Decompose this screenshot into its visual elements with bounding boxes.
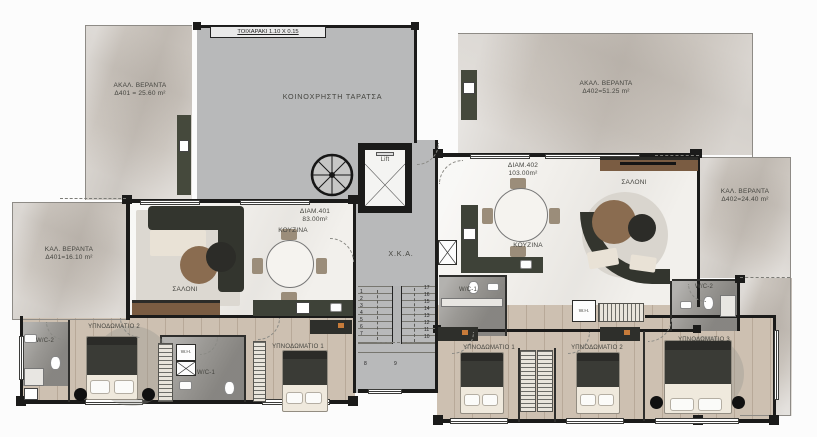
closet [520, 350, 536, 412]
water-heater-label: W.H. [573, 309, 595, 315]
water-heater-label: W.H. [177, 350, 195, 356]
sink [179, 381, 192, 390]
apt-area: 83.00m² [284, 216, 346, 224]
shower [24, 368, 44, 386]
kitchen-sink [330, 303, 342, 312]
label-apt401-bedroom2: ΥΠΝΟΔΩΜΑΤΙΟ 2 [66, 324, 162, 332]
stair-number: 16 [424, 293, 430, 298]
spiral-stair-icon [310, 153, 354, 197]
partition [672, 279, 740, 281]
apt-area: 103.00m² [492, 170, 554, 178]
toilet [50, 356, 61, 370]
shaft-box [438, 240, 457, 265]
headboard [577, 353, 619, 361]
pier [769, 415, 779, 425]
wall-note-label: ΤΟΙΧΑΡΑΚΙ 1.10 Χ 0.15 [210, 26, 326, 38]
coffee-table [206, 242, 236, 272]
blanket [87, 345, 138, 375]
label-apt402-kitchen: ΚΟΥΖΙΝΑ [497, 242, 559, 250]
label-apt402: ΔΙΑΜ.402 103.00m² [492, 162, 554, 179]
dining-table [494, 188, 548, 242]
window [566, 418, 624, 424]
headboard [283, 351, 327, 359]
bathtub [441, 298, 503, 307]
window [470, 154, 530, 159]
label-veranda-right: ΚΑΛ. ΒΕΡΑΝΤΑ Δ402=24.40 m² [695, 188, 795, 205]
floor-veranda-right [698, 157, 790, 278]
veranda-area: Δ402=51.25 m² [550, 88, 662, 96]
headboard [461, 353, 503, 361]
partition [244, 335, 246, 402]
veranda-name: ΑΚΑΛ. ΒΕΡΑΝΤΑ [550, 80, 662, 88]
apt-name: ΔΙΑΜ.401 [284, 208, 346, 216]
partition [554, 348, 556, 422]
apt-name: ΔΙΑΜ.402 [492, 162, 554, 170]
railing [458, 33, 753, 34]
shower [720, 295, 736, 317]
label-apt402-living: ΣΑΛΟΝΙ [603, 179, 665, 187]
label-apt401-bedroom1: ΥΠΝΟΔΩΜΑΤΙΟ 1 [250, 344, 346, 352]
window [450, 418, 508, 424]
pillow [698, 398, 722, 411]
dining-chair [549, 208, 560, 224]
pillow [598, 394, 614, 406]
railing [752, 33, 753, 157]
pillow [464, 394, 480, 406]
wall-wc2-402-right [737, 277, 740, 331]
label-corridor: Χ.Κ.Α. [377, 249, 425, 258]
veranda-area: Δ401 = 25.60 m² [88, 90, 192, 98]
partition [68, 320, 70, 402]
tv-console [132, 300, 220, 315]
lift-label: Lift [365, 157, 405, 165]
railing [698, 157, 790, 158]
label-apt402-bedroom2: ΥΠΝΟΔΩΜΑΤΙΟ 2 [554, 345, 640, 353]
stair-number: 2 [360, 297, 363, 302]
railing [85, 25, 192, 26]
veranda-name: ΑΚΑΛ. ΒΕΡΑΝΤΑ [88, 82, 192, 90]
label-veranda-top-left: ΑΚΑΛ. ΒΕΡΑΝΤΑ Δ401 = 25.60 m² [88, 82, 192, 99]
wall-corridor-right [435, 140, 438, 393]
veranda-name: ΚΑΛ. ΒΕΡΑΝΤΑ [695, 188, 795, 196]
label-apt401-kitchen: ΚΟΥΖΙΝΑ [262, 227, 324, 235]
partition [505, 277, 507, 336]
kitchen-sink [520, 260, 532, 269]
toilet [224, 381, 235, 395]
balcony-divider [177, 115, 191, 195]
stove [296, 302, 310, 314]
pillow [286, 392, 303, 404]
dining-chair [316, 258, 327, 274]
stair-number: 5 [360, 318, 363, 323]
wall-terrace-right [414, 25, 417, 143]
dining-table [266, 240, 314, 288]
stair-number: 12 [424, 321, 430, 326]
pillow [482, 394, 498, 406]
dining-chair [482, 208, 493, 224]
wall-apt401-left [126, 199, 130, 320]
side-table [74, 388, 87, 401]
side-table [142, 388, 155, 401]
pier [348, 396, 358, 406]
closet [158, 343, 173, 402]
veranda-area: Δ402=24.40 m² [695, 196, 795, 204]
dashed-boundary [655, 155, 699, 156]
blanket [461, 361, 504, 387]
floor-veranda-top-left [85, 25, 192, 200]
balcony-unit [179, 140, 189, 152]
pier [193, 22, 201, 30]
desk [310, 320, 352, 334]
window [655, 418, 739, 424]
pillow [114, 380, 134, 394]
pillow [670, 398, 694, 411]
balcony-unit [463, 82, 475, 94]
label-apt402-wc1: W/C-1 [446, 287, 490, 295]
stair-number: 9 [394, 362, 397, 367]
lift-panel [376, 152, 394, 156]
stair-number: 6 [360, 325, 363, 330]
railing [85, 25, 86, 200]
stair-number: 8 [364, 362, 367, 367]
dashed-boundary [740, 277, 790, 278]
desk-lamp [624, 330, 630, 335]
partition [643, 331, 645, 421]
label-apt401-wc2: W/C-2 [24, 338, 66, 346]
stair-landing-line [358, 352, 435, 353]
pier [693, 325, 701, 333]
stair-number: 11 [424, 328, 429, 333]
closet [537, 350, 553, 412]
railing [740, 415, 791, 416]
stair-number: 10 [424, 335, 430, 340]
dining-chair [252, 258, 263, 274]
stair-number: 1 [360, 290, 363, 295]
label-apt401-wc1: W/C-1 [184, 370, 228, 378]
label-apt401: ΔΙΑΜ.401 83.00m² [284, 208, 346, 225]
side-table [732, 396, 745, 409]
washing-machine [24, 388, 38, 400]
desk [600, 327, 640, 341]
balcony-divider [461, 70, 477, 120]
pillow [90, 380, 110, 394]
veranda-area: Δ401=16.10 m² [18, 254, 120, 262]
stair-number: 15 [424, 300, 430, 305]
coffee-table [628, 214, 656, 242]
label-apt402-bedroom1: ΥΠΝΟΔΩΜΑΤΙΟ 1 [446, 345, 532, 353]
window [368, 389, 402, 394]
label-veranda-top-right: ΑΚΑΛ. ΒΕΡΑΝΤΑ Δ402=51.25 m² [550, 80, 662, 97]
label-apt402-bedroom3: ΥΠΝΟΔΩΜΑΤΙΟ 3 [658, 337, 750, 345]
stair-number: 17 [424, 286, 430, 291]
stair-number: 3 [360, 304, 363, 309]
pier [122, 195, 132, 204]
label-apt402-wc2: W/C-2 [682, 284, 726, 292]
stair-route [414, 288, 415, 342]
stair-number: 7 [360, 332, 363, 337]
stair-route [377, 290, 378, 340]
dashed-boundary [60, 198, 126, 199]
stove [463, 228, 476, 240]
desk-lamp [338, 323, 344, 328]
window [140, 200, 200, 205]
railing [12, 202, 126, 203]
blanket [283, 359, 328, 385]
window [774, 330, 779, 400]
stair-number: 13 [424, 314, 430, 319]
label-apt401-living: ΣΑΛΟΝΙ [152, 286, 218, 294]
stair-number: 14 [424, 307, 430, 312]
label-common-terrace: ΚΟΙΝΟΧΡΗΣΤΗ ΤΑΡΑΤΣΑ [265, 92, 400, 101]
pillow [305, 392, 322, 404]
wall-corridor-left [353, 199, 356, 393]
headboard [87, 337, 137, 345]
veranda-name: ΚΑΛ. ΒΕΡΑΝΤΑ [18, 246, 120, 254]
pillow [580, 394, 596, 406]
tv [620, 162, 676, 165]
label-veranda-left: ΚΑΛ. ΒΕΡΑΝΤΑ Δ401=16.10 m² [18, 246, 120, 263]
stair-number: 4 [360, 311, 363, 316]
railing [12, 202, 13, 320]
pier [433, 415, 443, 425]
stair-route [377, 342, 415, 343]
water-heater-box: W.H. [572, 300, 596, 322]
floor-plan: Lift 1 2 3 4 5 6 7 17 16 15 14 13 12 11 … [0, 0, 817, 437]
partition [439, 275, 507, 277]
water-heater-box: W.H. [176, 344, 196, 361]
side-table [650, 396, 663, 409]
lift-cab: Lift [365, 150, 405, 206]
closet [598, 303, 644, 322]
blanket [665, 350, 732, 384]
pier [411, 22, 419, 30]
window [240, 200, 310, 205]
blanket [577, 361, 620, 387]
stair-midrail [392, 286, 402, 344]
shaft-x-icon [439, 241, 456, 264]
sink [680, 301, 692, 309]
